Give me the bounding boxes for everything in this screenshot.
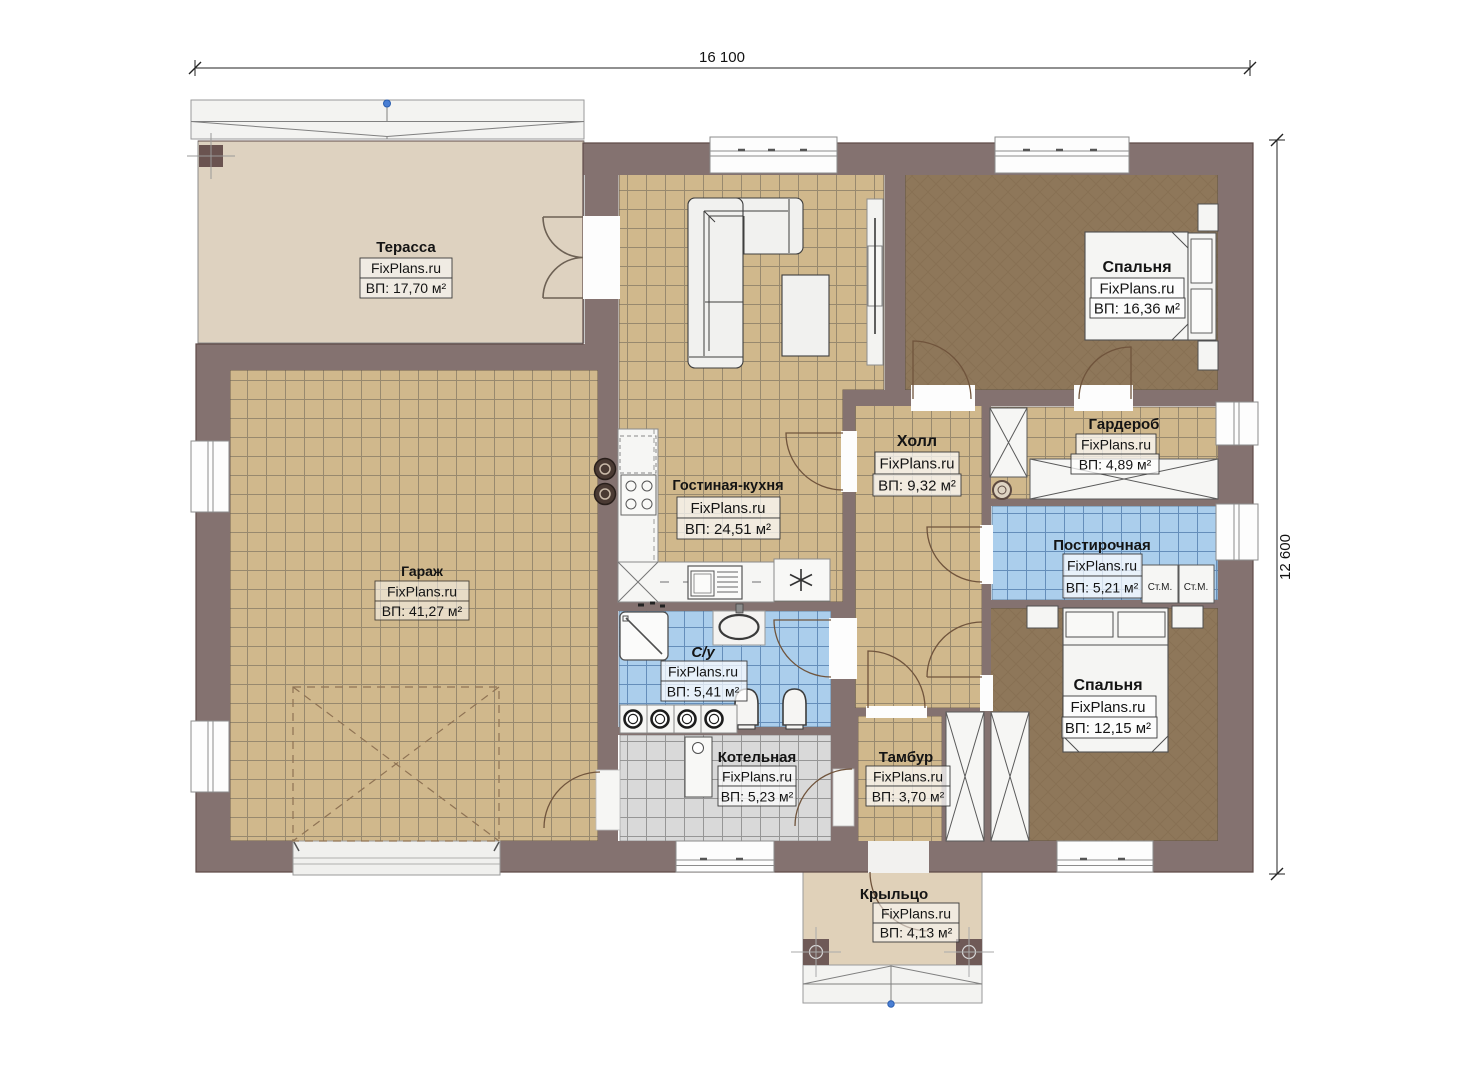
svg-text:FixPlans.ru: FixPlans.ru [879,456,954,473]
svg-text:Холл: Холл [897,433,937,450]
svg-text:FixPlans.ru: FixPlans.ru [722,769,792,785]
svg-text:ВП: 16,36 м²: ВП: 16,36 м² [1094,301,1180,318]
svg-text:ВП: 5,23 м²: ВП: 5,23 м² [721,789,794,805]
svg-text:Гараж: Гараж [401,563,444,579]
svg-text:FixPlans.ru: FixPlans.ru [1081,437,1151,453]
svg-text:FixPlans.ru: FixPlans.ru [690,500,765,517]
svg-text:16 100: 16 100 [699,49,745,66]
svg-text:FixPlans.ru: FixPlans.ru [873,769,943,785]
svg-text:FixPlans.ru: FixPlans.ru [387,584,457,600]
svg-text:Постирочная: Постирочная [1053,537,1150,554]
svg-text:ВП: 24,51 м²: ВП: 24,51 м² [685,521,771,538]
svg-text:ВП: 3,70 м²: ВП: 3,70 м² [872,789,945,805]
svg-text:FixPlans.ru: FixPlans.ru [371,260,441,276]
svg-text:Крыльцо: Крыльцо [860,886,928,903]
svg-text:Гостиная-кухня: Гостиная-кухня [672,478,783,494]
svg-text:FixPlans.ru: FixPlans.ru [1067,558,1137,574]
svg-text:ВП: 17,70 м²: ВП: 17,70 м² [366,280,447,296]
svg-text:Терасса: Терасса [376,239,436,256]
svg-text:Котельная: Котельная [718,749,797,766]
svg-text:Спальня: Спальня [1073,677,1142,694]
svg-text:FixPlans.ru: FixPlans.ru [881,906,951,922]
svg-text:ВП: 9,32 м²: ВП: 9,32 м² [878,478,956,495]
svg-text:С/у: С/у [691,644,715,661]
svg-text:Тамбур: Тамбур [879,749,933,766]
svg-text:FixPlans.ru: FixPlans.ru [668,664,738,680]
svg-text:ВП: 4,13 м²: ВП: 4,13 м² [880,925,953,941]
svg-text:ВП: 12,15 м²: ВП: 12,15 м² [1065,720,1151,737]
svg-text:ВП: 41,27 м²: ВП: 41,27 м² [382,603,463,619]
svg-text:FixPlans.ru: FixPlans.ru [1099,281,1174,298]
svg-text:Гардероб: Гардероб [1089,416,1160,433]
svg-text:ВП: 5,21 м²: ВП: 5,21 м² [1066,580,1139,596]
svg-text:ВП: 4,89 м²: ВП: 4,89 м² [1079,457,1152,473]
svg-text:Ст.М.: Ст.М. [1148,582,1173,593]
svg-text:FixPlans.ru: FixPlans.ru [1070,699,1145,716]
svg-text:12 600: 12 600 [1277,534,1294,580]
svg-text:Спальня: Спальня [1102,259,1171,276]
svg-text:ВП: 5,41 м²: ВП: 5,41 м² [667,684,740,700]
svg-text:Ст.М.: Ст.М. [1184,582,1209,593]
